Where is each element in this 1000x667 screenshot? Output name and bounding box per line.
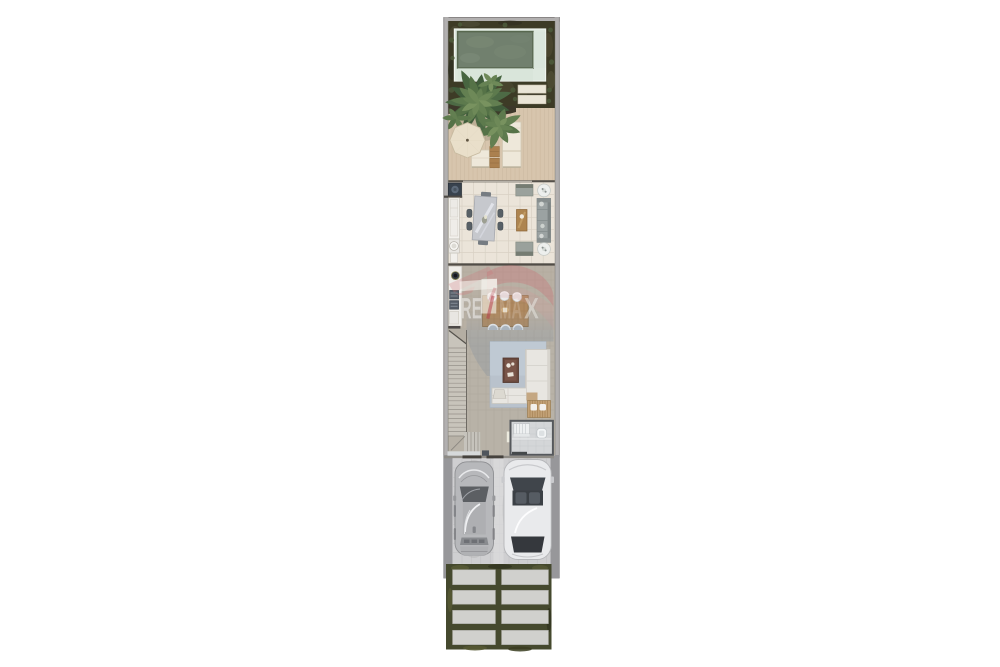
svg-text:MA: MA — [499, 293, 522, 326]
svg-text:RE: RE — [461, 293, 482, 326]
svg-text:X: X — [524, 293, 539, 326]
